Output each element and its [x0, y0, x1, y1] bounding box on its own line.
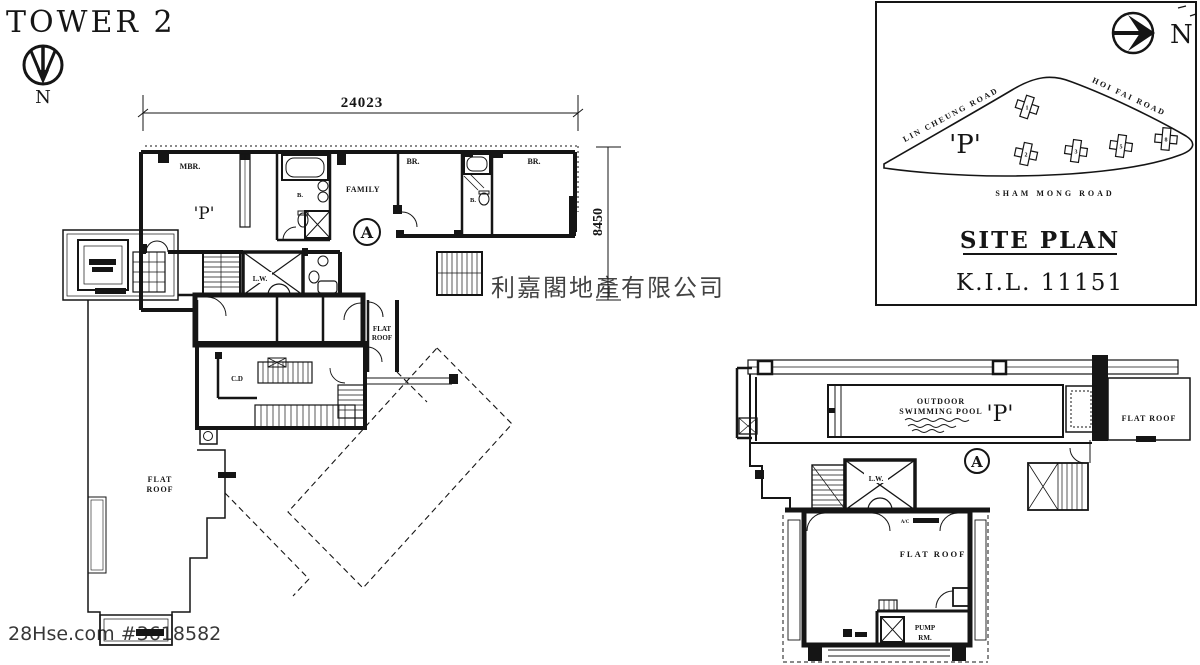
planter-tag [218, 472, 236, 478]
floorplan-canvas: TOWER 2 N 24023 8450 [0, 0, 1200, 665]
lift-well-label: L.W. [869, 475, 884, 483]
flat-roof-label-2: ROOF [146, 485, 173, 494]
basin-icon [318, 256, 328, 266]
tower-number: 5 [1120, 145, 1123, 151]
roof-stair-right [1028, 440, 1090, 510]
tower-footprint: 1 [1013, 93, 1041, 121]
lift-well: L.W. [243, 252, 303, 295]
flat-roof-boundary [88, 300, 225, 645]
watermark-corner: 28Hse.com #3618582 [8, 623, 221, 645]
flat-marker-letter: A [970, 453, 983, 471]
tower-footprint: 2 [1013, 141, 1039, 167]
room-label-bath2: B. [470, 197, 476, 204]
site-plan: N 1 2 3 5 8 [876, 2, 1196, 305]
roof-parapet [748, 360, 1178, 374]
north-compass [24, 46, 62, 84]
tower-footprint: 5 [1109, 134, 1134, 159]
flat-roof-small-1: FLAT [373, 325, 391, 333]
tower-footprint: 8 [1154, 127, 1178, 151]
road-label-sham-mong: SHAM MONG ROAD [995, 189, 1114, 198]
tower-number: 2 [1025, 153, 1028, 159]
north-label: N [35, 87, 51, 108]
lower-duplex-level: C.D [195, 295, 458, 444]
adjacent-tower-outline [225, 348, 512, 596]
room-label-family: FAMILY [346, 185, 380, 194]
roof-stair-left [812, 465, 844, 508]
basin-icon [318, 192, 328, 202]
pump-room-label-2: RM. [918, 634, 932, 642]
pool-label-1: OUTDOOR [917, 397, 965, 406]
room-label-br1: BR. [406, 157, 419, 166]
flat-roof-main-label: FLAT ROOF [900, 549, 967, 559]
room-label-br2: BR. [527, 157, 540, 166]
north-arrow-icon [37, 70, 49, 84]
internal-stairs [255, 362, 365, 427]
basin-icon [318, 181, 328, 191]
room-label-cd: C.D [231, 375, 243, 383]
dimension-height-value: 8450 [591, 208, 606, 236]
right-flat-roof: PLANTER FLAT ROOF [1108, 378, 1190, 442]
roof-room [804, 511, 970, 645]
planter-label: PLANTER [1136, 437, 1155, 442]
tower-number: 3 [1075, 150, 1078, 156]
planter-strips [788, 520, 986, 640]
lobby-bathroom [309, 256, 337, 293]
unit-label: 'P' [194, 204, 215, 224]
pump-room-label-1: PUMP [915, 624, 936, 632]
road-label-hoi-fai: HOI FAI ROAD [1091, 76, 1168, 118]
flat-roof-label-1: FLAT [148, 475, 173, 484]
flat-marker-letter: A [360, 223, 374, 242]
planter-label: PLANTER [100, 289, 119, 294]
site-north-label: N [1170, 20, 1193, 50]
door-swings [936, 591, 953, 608]
roof-lift-well: L.W. [845, 460, 915, 510]
upper-right-stair [437, 252, 482, 295]
lift-well-label: L.W. [253, 275, 268, 283]
service-fixture [200, 428, 217, 444]
bathtub-icon [282, 155, 328, 180]
tower-footprint: 3 [1064, 139, 1089, 164]
site-plan-heading: SITE PLAN [960, 227, 1120, 254]
pool-label-2: SWIMMING POOL [899, 407, 982, 416]
flat-roof-right-label: FLAT ROOF [1122, 414, 1177, 423]
planter-tag: PLANTER [95, 288, 126, 294]
tower-number: 1 [1026, 106, 1029, 112]
floorplan-page: { "title": "TOWER 2", "compass": { "nort… [0, 0, 1200, 665]
roof-flat-marker: A [965, 449, 989, 473]
lobby-stair [203, 252, 240, 295]
door-swings [207, 297, 361, 320]
site-plan-lot: K.I.L. 11151 [956, 270, 1124, 296]
water-icon [905, 419, 969, 433]
left-roof-area: PLANTER PLANTER FLAT ROOF [63, 230, 236, 645]
bathroom-fixtures [282, 155, 330, 238]
flat-roof-small-2: ROOF [372, 334, 392, 342]
flat-marker: A [354, 219, 380, 245]
watermark-center: 利嘉閣地產有限公司 [491, 274, 725, 302]
pump-room: PUMP RM. [843, 600, 970, 645]
dashed-envelope [145, 146, 578, 212]
room-label-mbr: MBR. [180, 162, 201, 171]
roof-plan: OUTDOOR SWIMMING POOL 'P' PLANTER FLAT R… [737, 355, 1190, 662]
site-unit-label: 'P' [949, 130, 981, 160]
toilet-icon [309, 271, 319, 283]
roof-unit-label: 'P' [987, 402, 1014, 427]
room-label-bath: B. [297, 192, 303, 199]
bathroom2-fixtures [464, 154, 490, 205]
skylight-box [1066, 386, 1096, 432]
toilet-icon [479, 193, 489, 205]
roof-corner-box [739, 418, 757, 434]
side-planter [88, 497, 106, 573]
page-title: TOWER 2 [6, 5, 176, 40]
upper-floor-plan: L.W. MBR. 'P' B. FAMILY BR. B. BR. [140, 146, 578, 372]
dimension-width-value: 24023 [341, 95, 384, 111]
tower-number: 8 [1165, 138, 1168, 144]
wardrobe [240, 154, 250, 227]
door-swings [146, 212, 417, 317]
bathtub-icon [318, 281, 337, 293]
ac-label: A/C [901, 520, 910, 525]
